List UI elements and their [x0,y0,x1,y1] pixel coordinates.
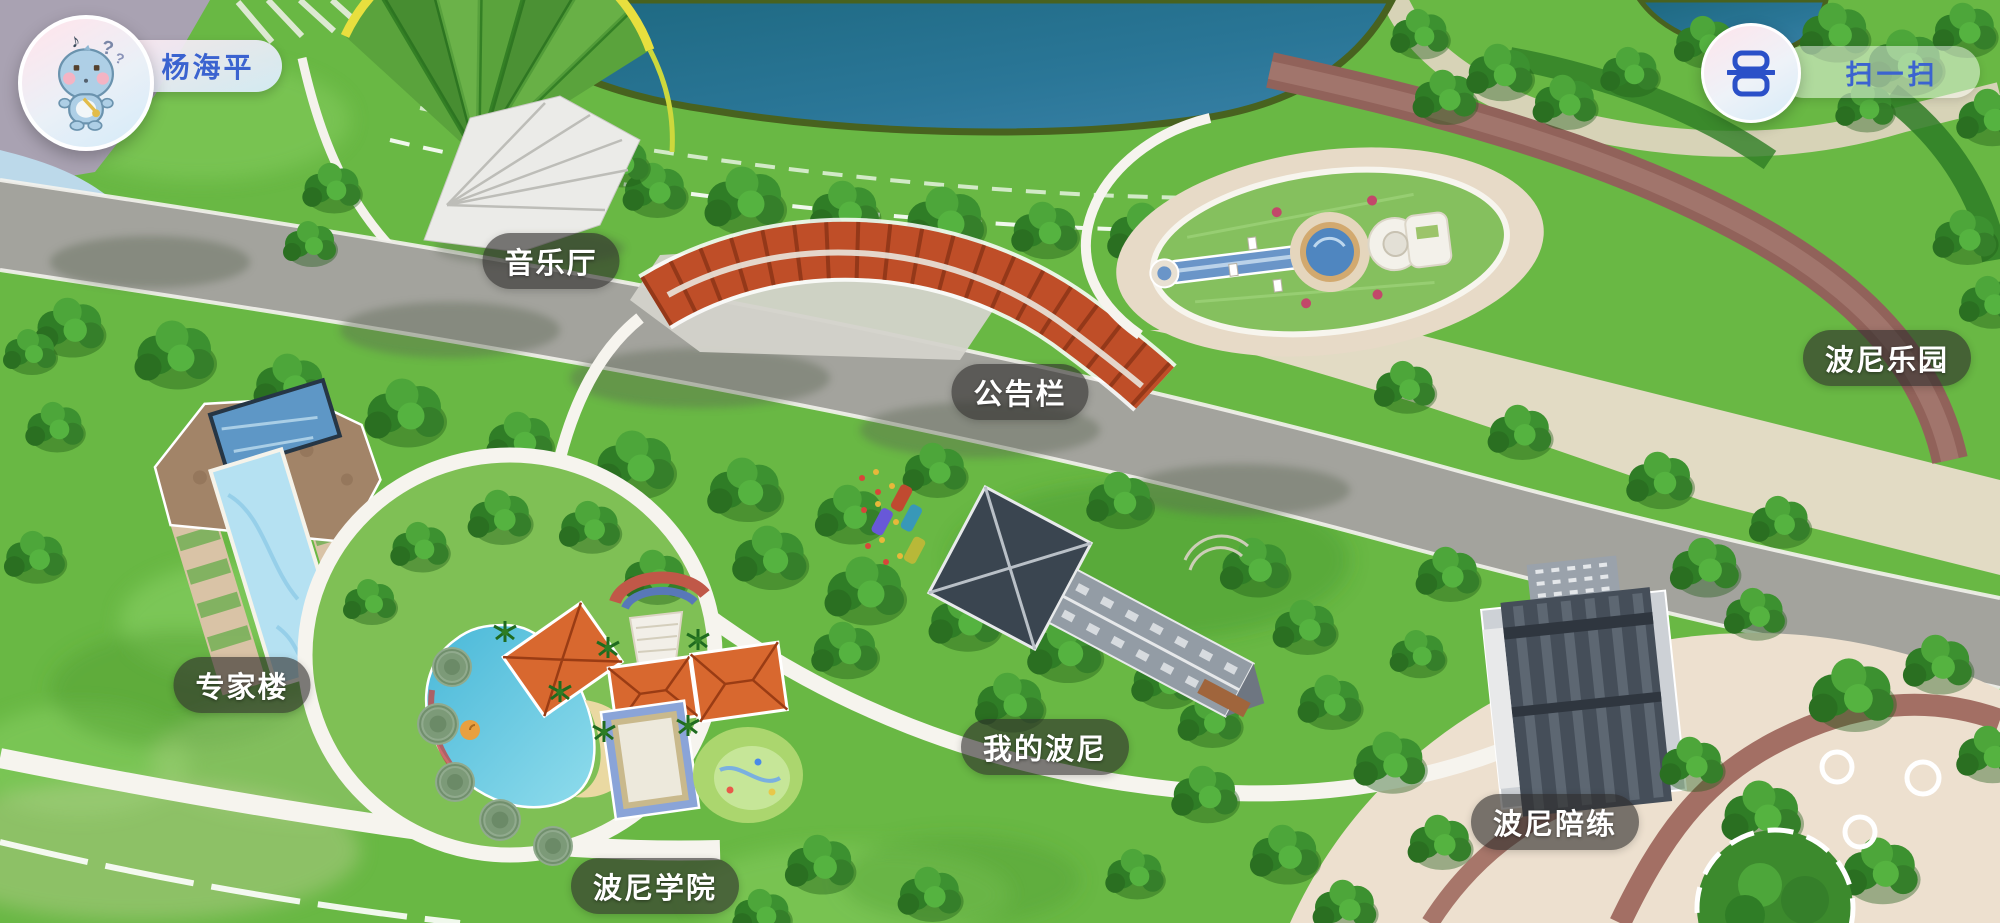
player-name: 杨海平 [161,46,254,86]
poi-text: 音乐厅 [504,248,597,280]
poi-label-expert-building[interactable]: 专家楼 [173,657,310,713]
park-map-illustration[interactable] [0,0,2000,923]
poi-text: 专家楼 [195,672,288,704]
scan-pill[interactable]: 扫一扫 [1778,46,1980,98]
svg-text:?: ? [113,51,127,69]
poi-text: 公告栏 [973,379,1066,411]
poi-label-poni-trainer[interactable]: 波尼陪练 [1471,794,1639,850]
blue-dino-avatar-icon: ♪ ? ? [32,27,140,139]
scan-frame-icon [1727,49,1775,97]
game-map-screen: 杨海平 ♪ ? ? 扫一扫 音乐厅 公告栏 波尼乐园 专家楼 波尼学院 我的波尼 [0,0,2000,923]
scan-label: 扫一扫 [1846,53,1939,92]
poi-label-notice-board[interactable]: 公告栏 [951,364,1088,420]
poi-text: 我的波尼 [983,734,1107,766]
poi-text: 波尼陪练 [1493,809,1617,841]
poi-label-poni-playground[interactable]: 波尼乐园 [1803,330,1971,386]
scan-button[interactable] [1701,23,1801,123]
poi-label-poni-academy[interactable]: 波尼学院 [571,858,739,914]
poi-text: 波尼乐园 [1825,345,1949,377]
player-badge: 杨海平 ♪ ? ? [0,0,280,170]
player-avatar-button[interactable]: ♪ ? ? [18,15,154,151]
poi-label-concert-hall[interactable]: 音乐厅 [482,233,619,289]
poi-text: 波尼学院 [593,873,717,905]
poi-label-my-poni[interactable]: 我的波尼 [961,719,1129,775]
